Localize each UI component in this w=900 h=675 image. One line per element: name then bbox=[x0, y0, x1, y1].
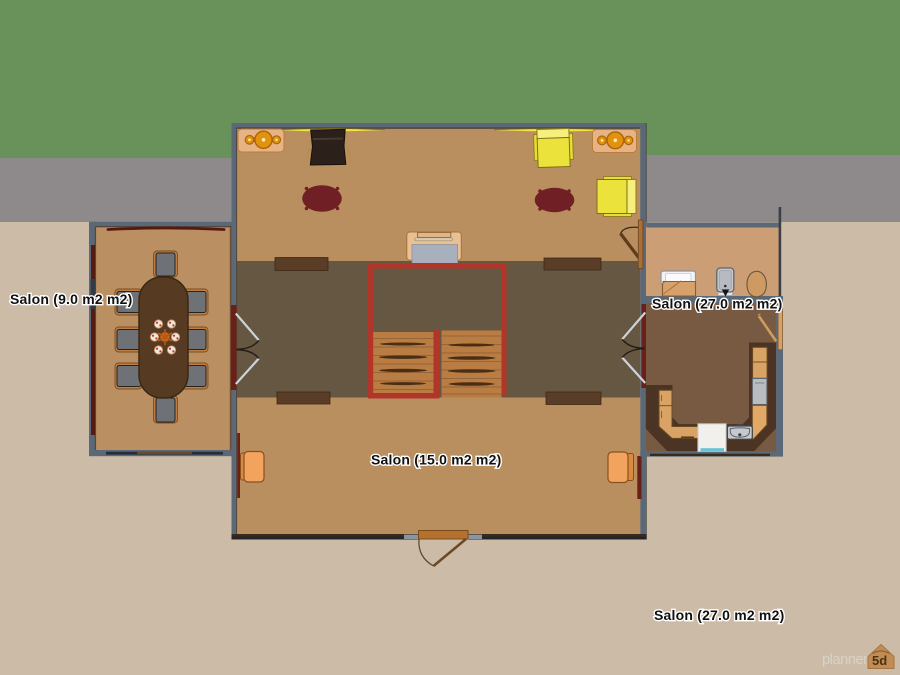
svg-text:Salon (27.0 m2 m2): Salon (27.0 m2 m2) bbox=[654, 607, 784, 623]
svg-text:Salon (15.0 m2 m2): Salon (15.0 m2 m2) bbox=[371, 452, 501, 468]
svg-text:planner: planner bbox=[822, 652, 868, 668]
svg-text:5d: 5d bbox=[872, 653, 887, 668]
svg-text:Salon (27.0 m2 m2): Salon (27.0 m2 m2) bbox=[652, 296, 782, 312]
svg-text:Salon (9.0 m2 m2): Salon (9.0 m2 m2) bbox=[10, 291, 132, 307]
